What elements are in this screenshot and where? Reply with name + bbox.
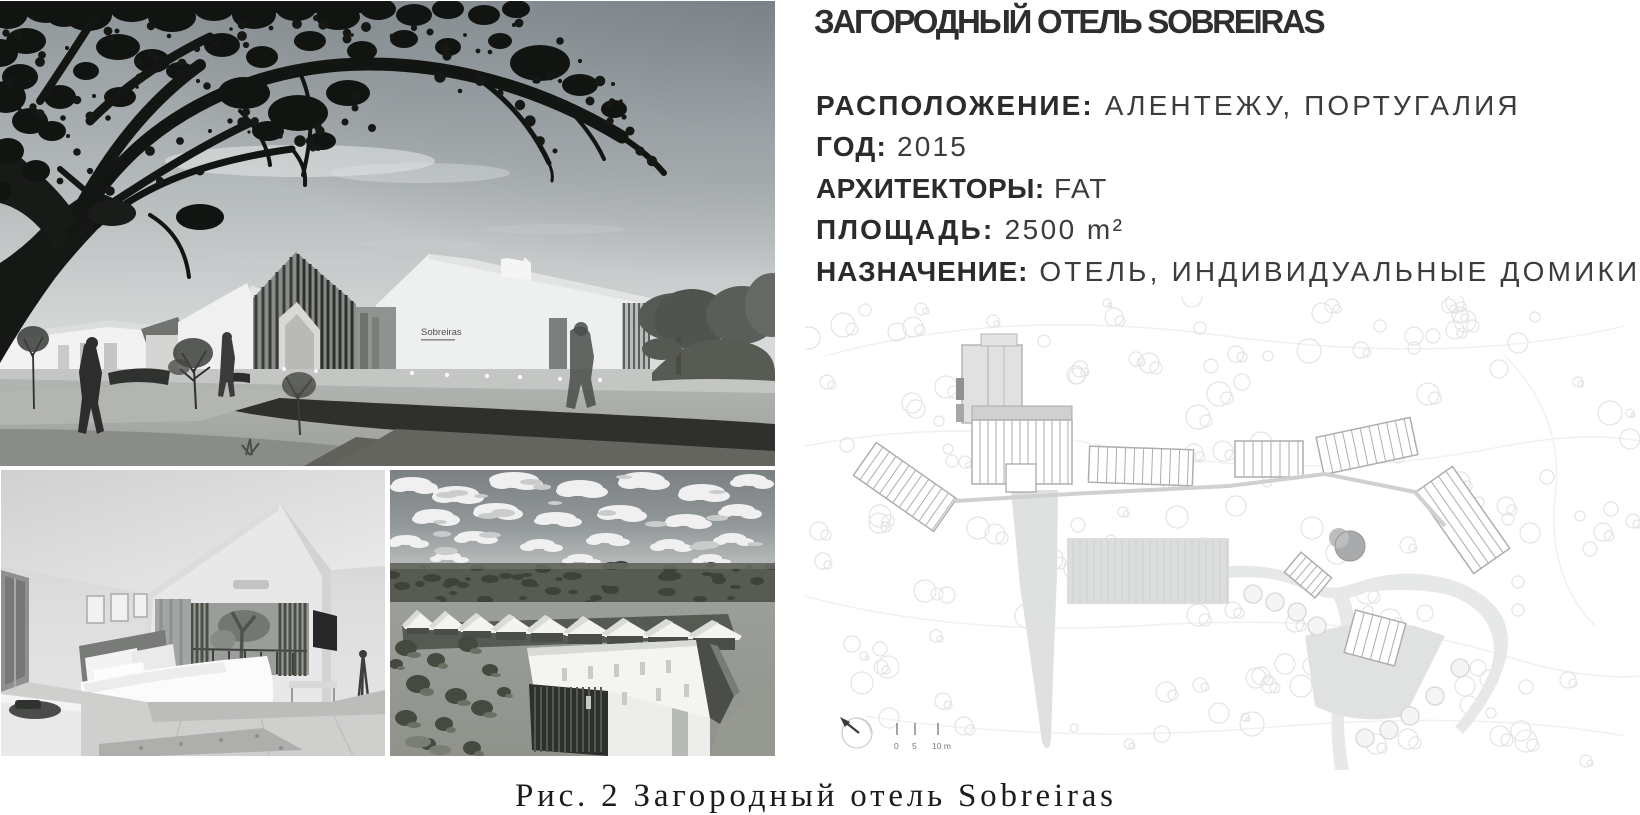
svg-text:Sobreiras: Sobreiras: [421, 327, 462, 338]
svg-text:0: 0: [894, 741, 899, 751]
svg-text:10 m: 10 m: [932, 741, 951, 751]
svg-text:5: 5: [912, 741, 917, 751]
